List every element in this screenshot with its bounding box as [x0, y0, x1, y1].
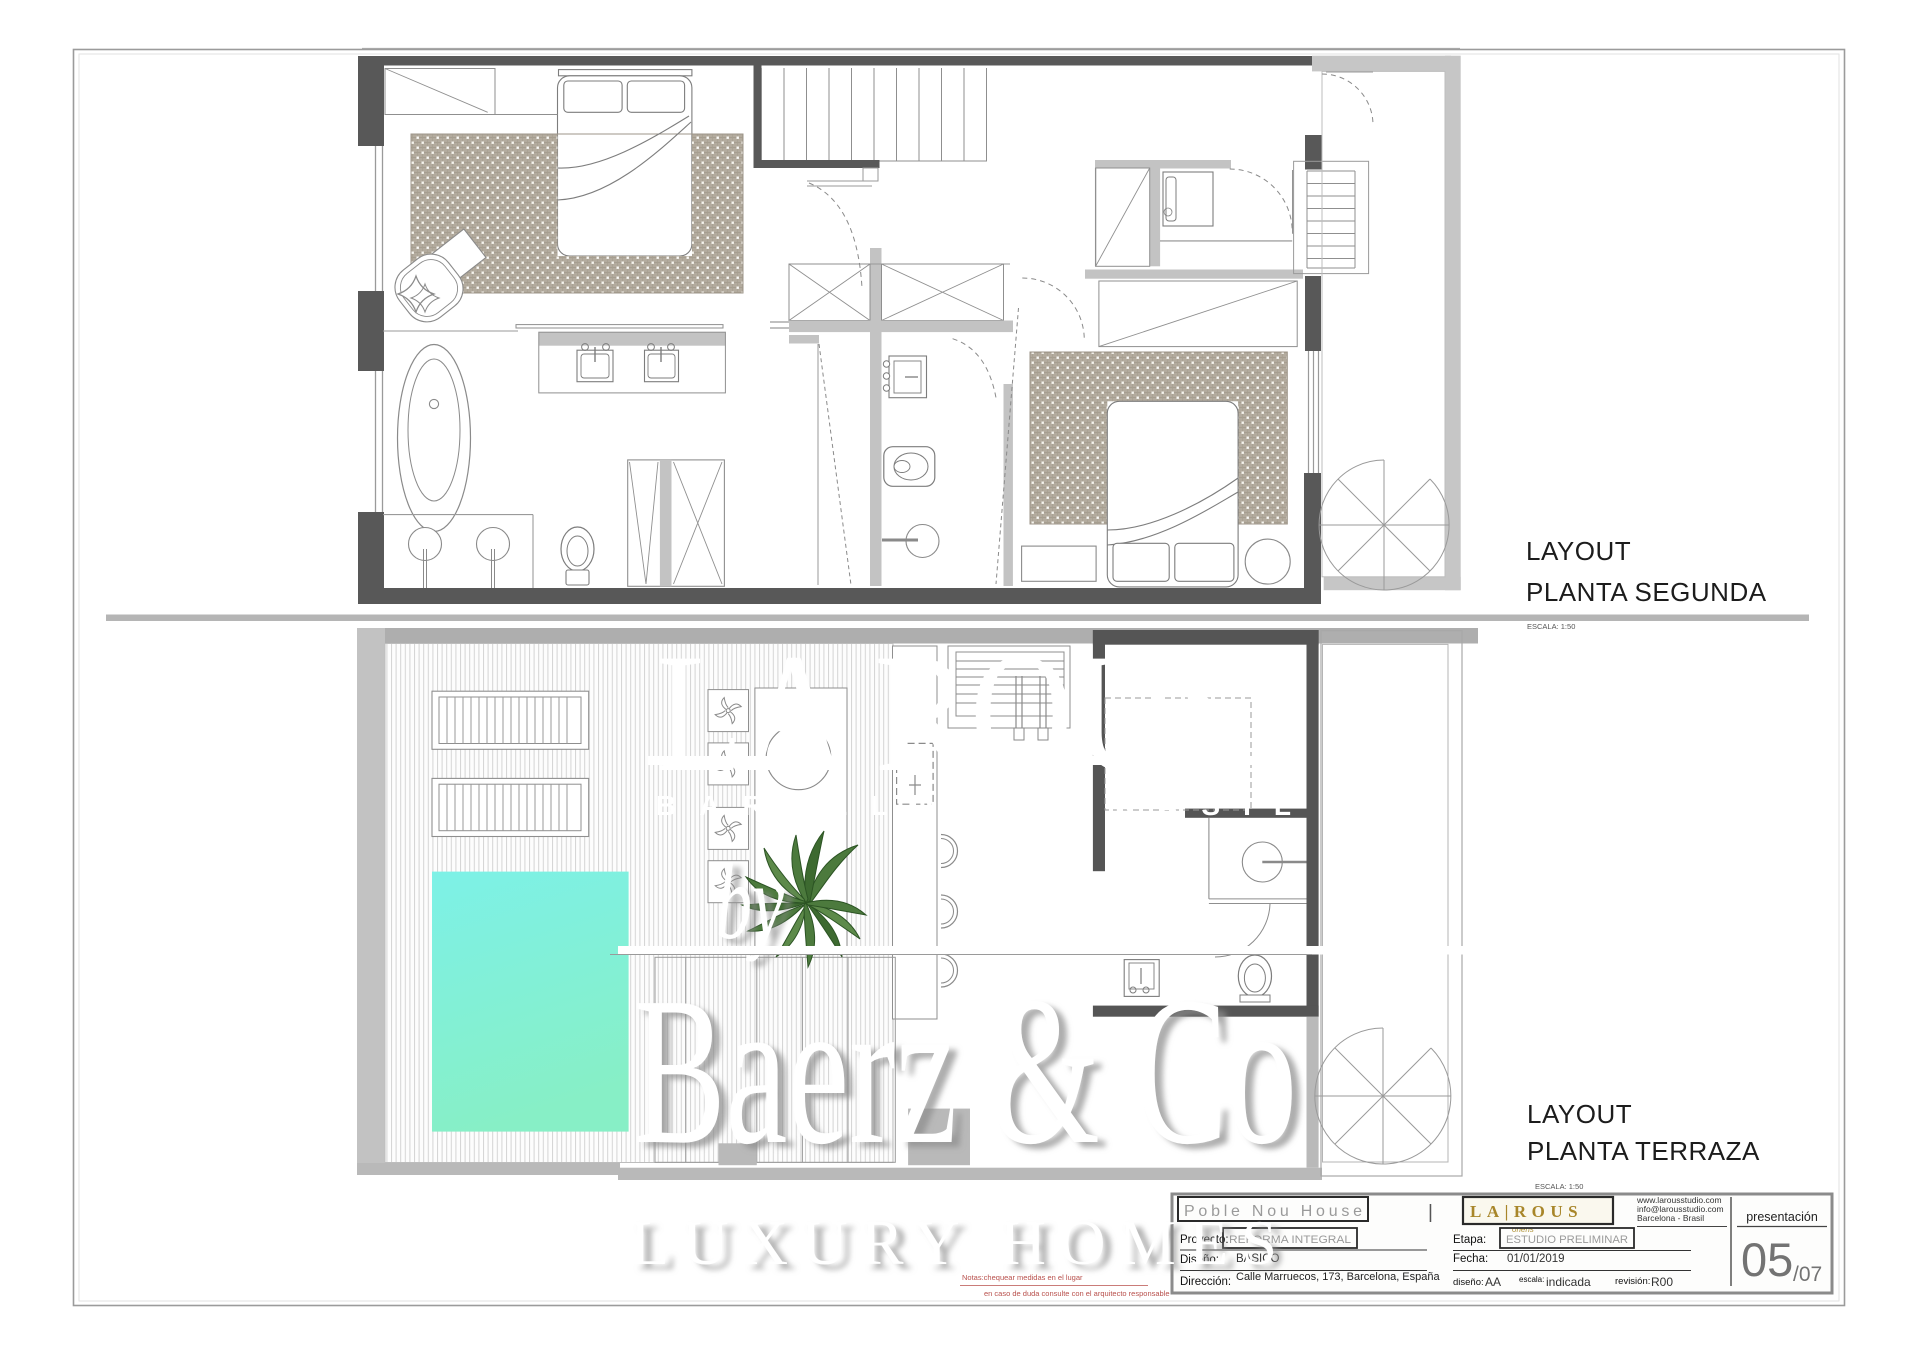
svg-text:R00: R00: [1651, 1275, 1673, 1289]
svg-text:Barcelona - Brasil: Barcelona - Brasil: [1637, 1213, 1704, 1223]
svg-text:Baerz & Co: Baerz & Co: [633, 953, 1297, 1188]
svg-text:|: |: [1428, 1202, 1433, 1223]
svg-text:01/01/2019: 01/01/2019: [1507, 1253, 1565, 1265]
svg-text:by: by: [716, 843, 784, 962]
svg-text:LAYOUT: LAYOUT: [1527, 1099, 1632, 1129]
svg-text:/07: /07: [1793, 1263, 1822, 1286]
svg-text:en caso de duda consulte con e: en caso de duda consulte con el arquitec…: [984, 1289, 1170, 1298]
svg-text:revisión:: revisión:: [1615, 1276, 1650, 1287]
svg-text:Fecha:: Fecha:: [1453, 1253, 1488, 1265]
svg-text:PLANTA TERRAZA: PLANTA TERRAZA: [1527, 1136, 1760, 1166]
svg-text:LAYOUT: LAYOUT: [1526, 536, 1631, 566]
svg-text:LA ROUS: LA ROUS: [656, 619, 1256, 807]
svg-text:LA|ROUS: LA|ROUS: [1470, 1202, 1583, 1221]
svg-text:diseño:: diseño:: [1453, 1277, 1484, 1288]
svg-text:escala:: escala:: [1519, 1275, 1544, 1284]
svg-text:PLANTA SEGUNDA: PLANTA SEGUNDA: [1526, 577, 1767, 607]
svg-text:05: 05: [1741, 1233, 1793, 1286]
svg-text:AA: AA: [1485, 1275, 1501, 1289]
svg-text:ESTUDIO PRELIMINAR: ESTUDIO PRELIMINAR: [1506, 1234, 1628, 1246]
svg-text:presentación: presentación: [1746, 1210, 1818, 1224]
svg-text:indicada: indicada: [1546, 1275, 1591, 1289]
svg-text:ESCALA: 1:50: ESCALA: 1:50: [1535, 1182, 1583, 1191]
svg-text:Etapa:: Etapa:: [1453, 1234, 1486, 1246]
svg-text:ESCALA: 1:50: ESCALA: 1:50: [1527, 622, 1575, 631]
svg-text:onens: onens: [1512, 1225, 1534, 1234]
